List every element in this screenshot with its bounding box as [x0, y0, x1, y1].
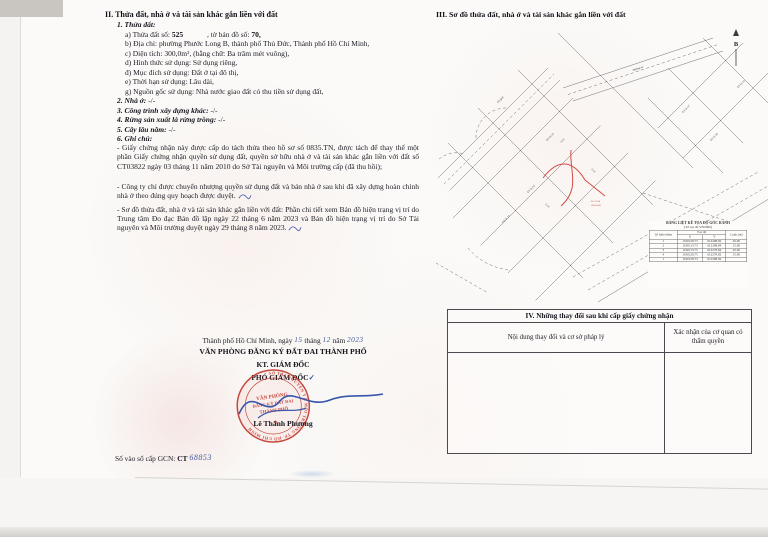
field-notes-heading: 6. Ghi chú: — [117, 134, 152, 143]
note-paragraph-2: - Công ty chỉ được chuyển nhượng quyền s… — [117, 182, 419, 201]
house-value: -/- — [148, 96, 155, 105]
parcel-label: Lô 51.02 — [527, 184, 537, 193]
field-use-term: e) Thời hạn sử dụng: Lâu dài, — [125, 77, 214, 86]
field-use-purpose: đ) Mục đích sử dụng: Đất ở tại đô thị, — [125, 68, 238, 77]
scanned-land-certificate-photo: II. Thửa đất, nhà ở và tài sản khác gắn … — [0, 0, 768, 537]
parcel-label: Lô 51.15 — [502, 214, 512, 223]
section2-title: II. Thửa đất, nhà ở và tài sản khác gắn … — [105, 10, 278, 19]
year-word: năm — [333, 336, 346, 345]
note-paragraph-1: - Giấy chứng nhận này được cấp do tách t… — [117, 143, 419, 171]
other-construction-label: 3. Công trình xây dựng khác: — [117, 106, 209, 115]
field-other-construction: 3. Công trình xây dựng khác: -/- — [117, 106, 218, 115]
forest-value: -/- — [218, 115, 225, 124]
coord-col-edge: Cạnh (m) — [726, 230, 747, 239]
issuing-office-name: VĂN PHÒNG ĐĂNG KÝ ĐẤT ĐAI THÀNH PHỐ — [152, 347, 414, 356]
gcn-entry-number-line: Số vào sổ cấp GCN: CT 68853 — [115, 454, 212, 463]
plot-heading-label: 1. Thửa đất: — [117, 20, 155, 29]
subject-parcel-red-label-1: Lô 51.04 — [591, 200, 601, 203]
field-address: b) Địa chỉ: phường Phước Long B, thành p… — [125, 39, 369, 48]
signer-name: Lê Thành Phương — [152, 419, 414, 428]
section4-changes-table: IV. Những thay đổi sau khi cấp giấy chứn… — [447, 309, 752, 454]
note-3-text: - Sơ đồ thửa đất, nhà ở và tài sản khác … — [117, 205, 419, 233]
section4-title: IV. Những thay đổi sau khi cấp giấy chứn… — [448, 310, 751, 323]
month-word: tháng — [304, 336, 320, 345]
coordinate-table: BẢNG LIỆT KÊ TỌA ĐỘ GÓC RANH (Tờ tọa độ … — [648, 221, 748, 289]
photo-bottom-edge-strip — [0, 527, 768, 537]
other-construction-value: -/- — [210, 106, 217, 115]
coord-row: 11190128.73612298.82 — [649, 257, 747, 262]
handwritten-year: 2023 — [347, 335, 364, 344]
perennial-label: 5. Cây lâu năm: — [117, 125, 167, 134]
field-use-form: d) Hình thức sử dụng: Sử dụng riêng, — [125, 58, 237, 67]
field-perennial: 5. Cây lâu năm: -/- — [117, 125, 176, 134]
certificate-page: II. Thửa đất, nhà ở và tài sản khác gắn … — [20, 0, 768, 478]
dimension-label: 15.00 — [590, 168, 596, 174]
section4-col2-header: Xác nhận của cơ quan có thẩm quyền — [665, 323, 751, 352]
coord-col-point: Số hiệu điểm — [649, 230, 677, 239]
deputy-director-signature — [232, 372, 392, 424]
handwritten-initial-mark-icon — [288, 225, 302, 232]
gcn-entry-number-handwritten: 68853 — [189, 453, 212, 462]
coord-cell — [726, 257, 747, 262]
road-label: Lộ giới — [497, 96, 505, 104]
north-arrow-icon: B — [733, 29, 739, 66]
coordinate-table-subtitle: (Tờ tọa độ VN2000) — [648, 225, 748, 229]
north-label: B — [734, 41, 739, 48]
map-sheet-value: 70, — [251, 30, 260, 39]
page-left-edge — [20, 17, 21, 477]
field-plot-number: a) Thửa đất số: 525 , tờ bản đồ số: 70, — [125, 30, 261, 39]
handwritten-initial-mark-icon — [238, 193, 252, 200]
place-date-line: Thành phố Hồ Chí Minh, ngày 15 tháng 12 … — [152, 336, 414, 345]
parcel-label: Lô 51.07 — [682, 104, 692, 113]
parcel-label: Lô 51.08 — [710, 132, 720, 141]
handwritten-day: 15 — [294, 335, 302, 344]
handwritten-month: 12 — [322, 335, 330, 344]
subject-parcel-red-label-2: (300.0m²) — [591, 204, 601, 207]
notes-heading-label: 6. Ghi chú: — [117, 134, 152, 143]
field-area: c) Diện tích: 300,0m², (bằng chữ: Ba tră… — [125, 49, 289, 58]
forest-label: 4. Rừng sản xuất là rừng trồng: — [117, 115, 216, 124]
parcel-label: Lô 51.03 — [546, 132, 556, 141]
coord-cell: 612298.82 — [703, 257, 726, 262]
section3-title: III. Sơ đồ thửa đất, nhà ở và tài sản kh… — [436, 10, 626, 19]
place-date-prefix: Thành phố Hồ Chí Minh, ngày — [202, 336, 292, 345]
house-label: 2. Nhà ở: — [117, 96, 146, 105]
plot-number-value: 525 — [172, 30, 183, 39]
section4-col1-header: Nội dung thay đổi và cơ sở pháp lý — [448, 323, 665, 352]
field-use-origin: g) Nguồn gốc sử dụng: Nhà nước giao đất … — [125, 87, 323, 96]
map-sheet-label: , tờ bản đồ số: — [207, 30, 250, 39]
section4-empty-body — [448, 353, 751, 453]
field-forest: 4. Rừng sản xuất là rừng trồng: -/- — [117, 115, 225, 124]
note-2-text: - Công ty chỉ được chuyển nhượng quyền s… — [117, 182, 419, 200]
coord-cell: 1 — [649, 257, 677, 262]
plot-heading: 1. Thửa đất: — [117, 20, 155, 29]
plot-number-label: a) Thửa đất số: — [125, 30, 170, 39]
coord-cell: 1190128.73 — [677, 257, 702, 262]
dimension-label: 20.00 — [560, 138, 566, 144]
parcel-label: Lô 51.10 — [737, 79, 747, 88]
gcn-entry-label: Số vào sổ cấp GCN: — [115, 454, 175, 463]
field-house: 2. Nhà ở: -/- — [117, 96, 155, 105]
perennial-value: -/- — [168, 125, 175, 134]
photo-background-corner — [0, 0, 63, 17]
note-paragraph-3: - Sơ đồ thửa đất, nhà ở và tài sản khác … — [117, 205, 419, 233]
dimension-label: 15.00 — [544, 203, 550, 209]
gcn-entry-code: CT — [177, 454, 187, 463]
